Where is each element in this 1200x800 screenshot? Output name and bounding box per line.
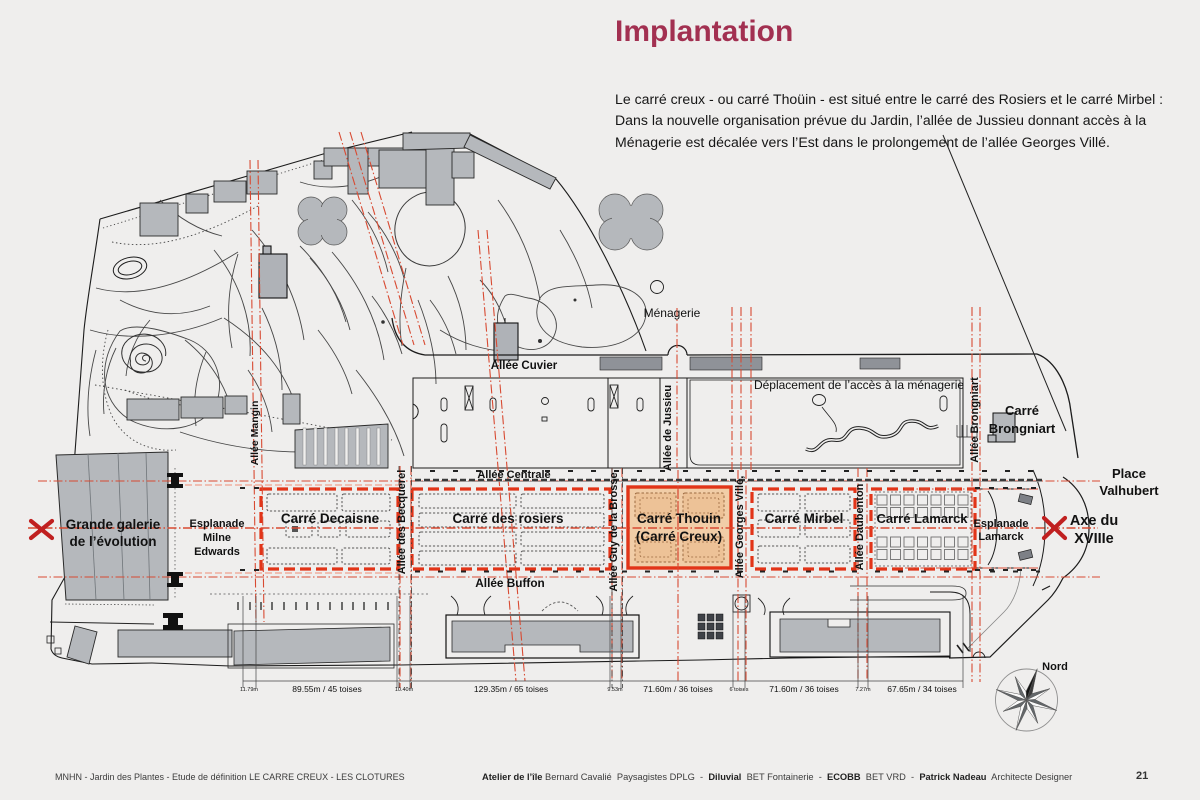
svg-text:Carré des rosiers: Carré des rosiers (452, 511, 563, 526)
svg-text:Axe du: Axe du (1070, 513, 1118, 529)
svg-text:Valhubert: Valhubert (1099, 483, 1159, 498)
svg-text:Allée Guy de la Brosse: Allée Guy de la Brosse (608, 472, 620, 591)
svg-text:Nord: Nord (1042, 661, 1068, 673)
svg-text:Milne: Milne (203, 532, 231, 544)
svg-text:Carré Mirbel: Carré Mirbel (765, 511, 844, 526)
svg-text:67.65m / 34 toises: 67.65m / 34 toises (887, 684, 956, 694)
svg-text:de l’évolution: de l’évolution (69, 534, 156, 549)
svg-text:Allée Brongniart: Allée Brongniart (969, 377, 981, 463)
svg-text:Brongniart: Brongniart (989, 421, 1056, 436)
svg-text:Allée Buffon: Allée Buffon (475, 576, 544, 590)
svg-text:Allée Daubenton: Allée Daubenton (854, 483, 866, 570)
svg-text:Grande galerie: Grande galerie (66, 517, 161, 532)
svg-text:Allée Cuvier: Allée Cuvier (491, 360, 558, 372)
svg-text:Déplacement de l’accès à la mé: Déplacement de l’accès à la ménagerie (754, 378, 964, 392)
svg-text:9.53m: 9.53m (607, 687, 623, 693)
svg-text:XVIIIe: XVIIIe (1074, 531, 1114, 547)
svg-text:Carré Thouin: Carré Thouin (637, 511, 721, 526)
svg-text:Ménagerie: Ménagerie (644, 306, 701, 320)
svg-text:Esplanade: Esplanade (973, 518, 1028, 530)
svg-text:Lamarck: Lamarck (978, 531, 1024, 543)
svg-text:Allée Centrale: Allée Centrale (477, 469, 550, 481)
svg-text:Esplanade: Esplanade (189, 518, 244, 530)
svg-text:129.35m / 65 toises: 129.35m / 65 toises (474, 684, 548, 694)
svg-text:Edwards: Edwards (194, 546, 240, 558)
svg-text:Carré Decaisne: Carré Decaisne (281, 511, 380, 526)
svg-text:Allée Georges Villé,: Allée Georges Villé, (734, 476, 746, 579)
svg-text:7.27m: 7.27m (855, 687, 871, 693)
svg-text:71.60m / 36 toises: 71.60m / 36 toises (643, 684, 712, 694)
svg-text:Allée de Jussieu: Allée de Jussieu (662, 385, 674, 471)
svg-text:71.60m / 36 toises: 71.60m / 36 toises (769, 684, 838, 694)
svg-text:Allée des Becquerel: Allée des Becquerel (396, 470, 408, 575)
svg-text:10.40m: 10.40m (395, 687, 414, 693)
svg-text:11.79m: 11.79m (240, 687, 258, 693)
svg-text:(Carré Creux): (Carré Creux) (636, 529, 722, 544)
svg-text:89.55m / 45 toises: 89.55m / 45 toises (292, 684, 361, 694)
svg-text:Place: Place (1112, 466, 1146, 481)
svg-text:6 toises: 6 toises (730, 687, 749, 693)
svg-text:Carré: Carré (1005, 403, 1039, 418)
svg-text:Allée Mangin: Allée Mangin (249, 401, 261, 466)
svg-text:Carré Lamarck: Carré Lamarck (876, 511, 968, 526)
